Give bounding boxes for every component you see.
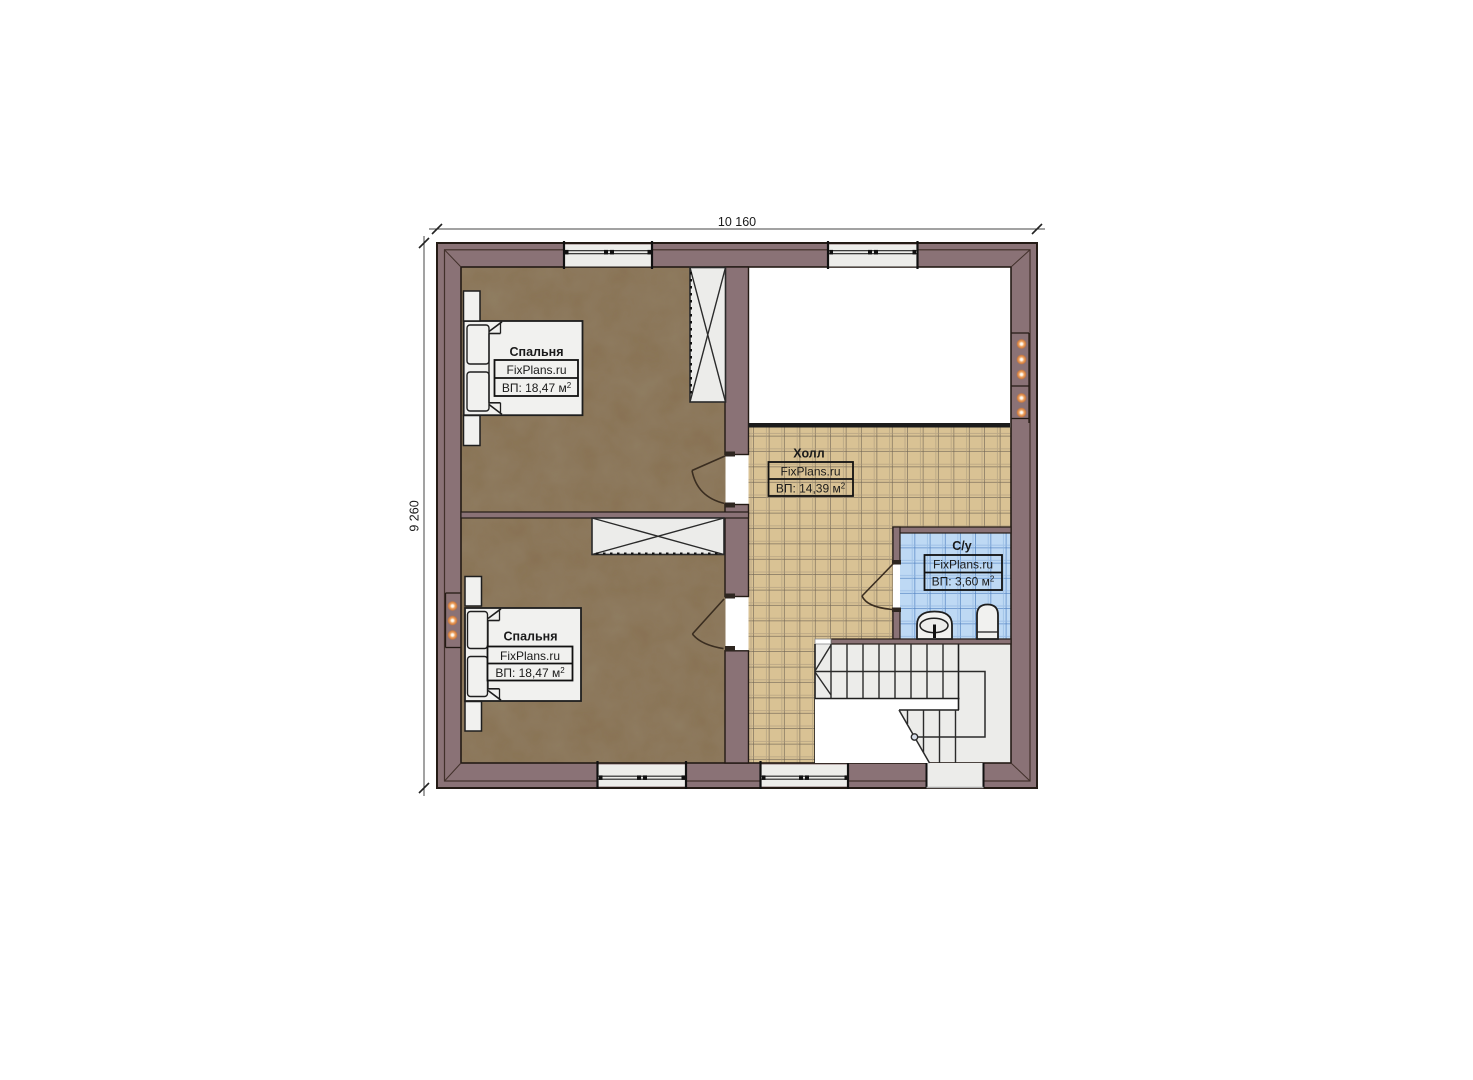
svg-text:FixPlans.ru: FixPlans.ru <box>506 363 566 377</box>
svg-text:FixPlans.ru: FixPlans.ru <box>933 558 993 572</box>
svg-text:9 260: 9 260 <box>408 500 422 531</box>
svg-text:Спальня: Спальня <box>504 630 558 644</box>
svg-text:10 160: 10 160 <box>718 215 756 229</box>
svg-text:Холл: Холл <box>793 447 824 461</box>
svg-text:С/у: С/у <box>952 539 972 553</box>
svg-text:ВП: 18,47 м2: ВП: 18,47 м2 <box>502 381 572 395</box>
svg-text:ВП: 14,39 м2: ВП: 14,39 м2 <box>776 482 846 496</box>
svg-text:ВП: 18,47 м2: ВП: 18,47 м2 <box>495 666 565 680</box>
svg-text:Спальня: Спальня <box>510 345 564 359</box>
svg-text:FixPlans.ru: FixPlans.ru <box>500 649 560 663</box>
svg-text:ВП: 3,60 м2: ВП: 3,60 м2 <box>932 575 995 589</box>
svg-text:FixPlans.ru: FixPlans.ru <box>780 465 840 479</box>
